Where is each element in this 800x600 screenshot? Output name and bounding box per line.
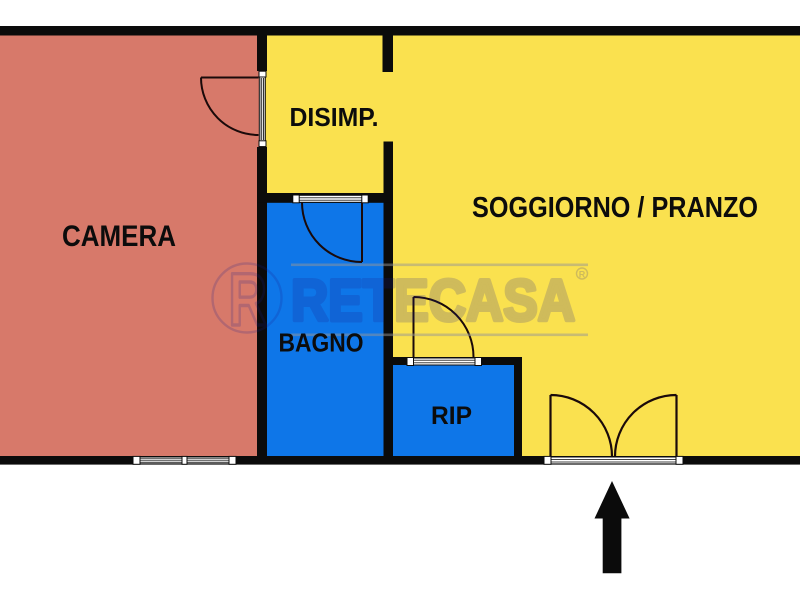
- svg-text:BAGNO: BAGNO: [279, 330, 364, 358]
- svg-text:RIP: RIP: [431, 402, 472, 430]
- svg-text:RETECASA: RETECASA: [291, 269, 575, 334]
- svg-text:R: R: [579, 270, 586, 280]
- svg-text:R: R: [229, 258, 267, 341]
- svg-text:DISIMP.: DISIMP.: [290, 102, 379, 132]
- svg-text:SOGGIORNO / PRANZO: SOGGIORNO / PRANZO: [472, 192, 758, 224]
- svg-text:CAMERA: CAMERA: [62, 220, 176, 253]
